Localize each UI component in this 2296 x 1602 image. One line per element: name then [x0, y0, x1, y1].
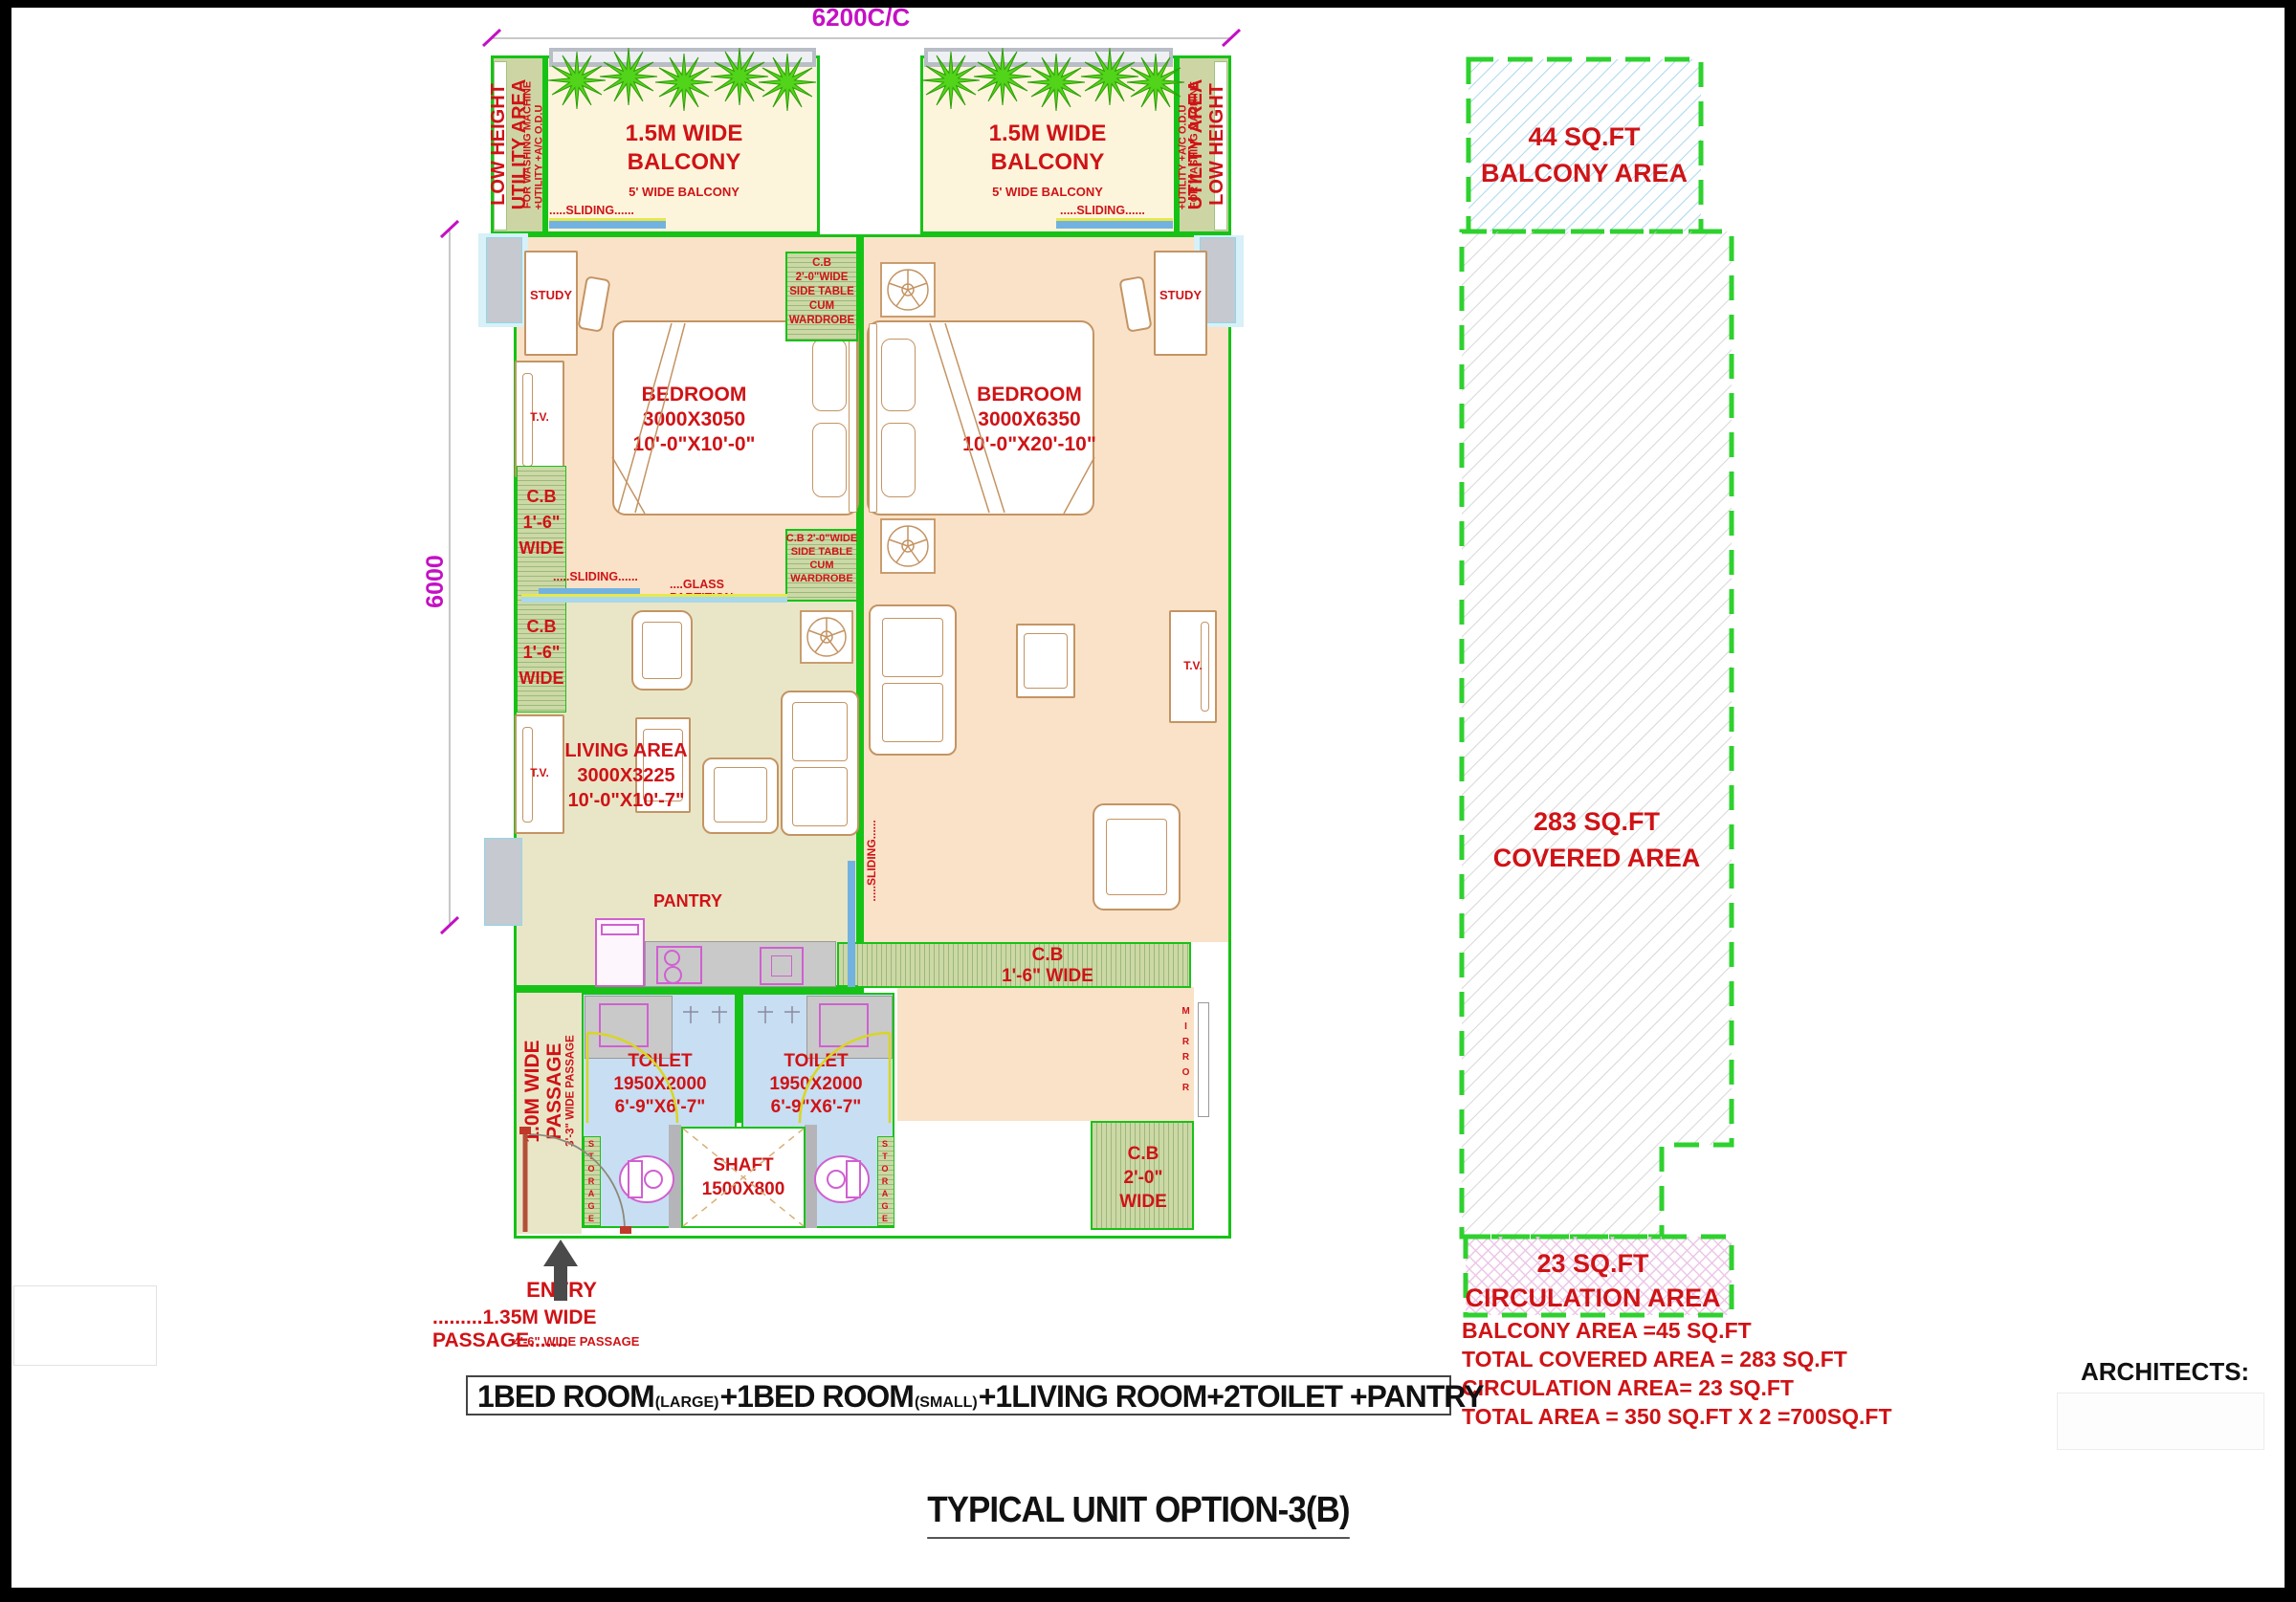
shaft-label: SHAFT1500X800	[686, 1153, 801, 1201]
program-rest: +1LIVING ROOM+2TOILET +PANTRY	[979, 1379, 1484, 1415]
dressing-area-floor	[897, 987, 1194, 1121]
armchair-bedroom2-seat	[1106, 819, 1167, 895]
sofa-living-single-seat	[714, 767, 767, 823]
toilet2-label: TOILET1950X20006'-9"X6'-7"	[744, 1050, 888, 1119]
floor-plan-sheet: 6200C/C 6000 1.5M WIDE BALCONY 5' WIDE B…	[0, 0, 2296, 1602]
sofa-living-cushion-2	[792, 767, 848, 826]
covered-area-box	[1462, 231, 1732, 1237]
study-desk-bedroom2	[1154, 251, 1207, 356]
stove-burner-1	[664, 950, 680, 966]
pantry-label: PANTRY	[653, 891, 749, 911]
sofa-bedroom2-cushion-1	[882, 618, 943, 677]
fridge-top	[601, 924, 639, 935]
area-diagram: 44 SQ.FT BALCONY AREA 283 SQ.FT COVERED …	[1445, 38, 1760, 1329]
sofa-bedroom2-cushion-2	[882, 683, 943, 742]
bed1-pillow-1	[812, 339, 847, 411]
sheet-title: TYPICAL UNIT OPTION-3(B)	[927, 1490, 1349, 1539]
living-area-label: LIVING AREA3000X322510'-0"X10'-7"	[547, 738, 705, 813]
summary-line-covered: TOTAL COVERED AREA = 283 SQ.FT	[1462, 1347, 1921, 1372]
wc-icon-toilet1	[617, 1150, 676, 1209]
toilet1-basin	[599, 1003, 649, 1047]
bedroom1-label: BEDROOM3000X305010'-0"X10'-0"	[620, 383, 768, 457]
balcony-right-label-1: 1.5M WIDE	[961, 121, 1134, 147]
bed1-pillow-2	[812, 423, 847, 497]
storage-label-toilet1: STORAGE	[586, 1139, 596, 1226]
balcony-left-label-1: 1.5M WIDE	[598, 121, 770, 147]
balcony-right-sliding-door	[1056, 221, 1173, 229]
wall-between-toilets	[737, 993, 742, 1123]
balcony-right-sublabel: 5' WIDE BALCONY	[971, 186, 1124, 200]
living-sliding-label: .....SLIDING......	[553, 570, 668, 583]
balcony-left-sublabel: 5' WIDE BALCONY	[607, 186, 761, 200]
summary-line-circulation: CIRCULATION AREA= 23 SQ.FT	[1462, 1375, 1921, 1400]
entry-label: ENTRY	[519, 1278, 605, 1302]
study-desk-bedroom1	[524, 251, 578, 356]
storage-label-toilet2: STORAGE	[880, 1139, 890, 1226]
bed2-headboard	[869, 323, 877, 513]
program-summary-box: 1BED ROOM(LARGE)+1BED ROOM(SMALL)+1LIVIN…	[466, 1375, 1451, 1415]
sink-basin	[771, 955, 792, 977]
fan-icon-living	[800, 610, 853, 664]
passage-46-label: 4'-6" WIDE PASSAGE	[493, 1335, 660, 1350]
program-sup2: (SMALL)	[914, 1394, 979, 1412]
program-plus: +	[719, 1379, 737, 1415]
toilet1-label: TOILET1950X20006'-9"X6'-7"	[588, 1050, 732, 1119]
study-label-bedroom2: STUDY	[1154, 289, 1207, 303]
bed1-headboard	[849, 323, 857, 513]
architects-label: ARCHITECTS:	[2081, 1358, 2263, 1387]
planter-icons-right	[916, 34, 1189, 122]
program-sup1: (LARGE)	[654, 1394, 720, 1412]
covered-area-value: 283 SQ.FT	[1534, 807, 1661, 836]
mirror-panel	[1198, 1002, 1209, 1117]
balcony-left-label-2: BALCONY	[598, 149, 770, 176]
fan-icon-bedroom2-top	[880, 262, 936, 318]
wardrobe-top-label: C.B 2'-0"WIDESIDE TABLECUMWARDROBE	[785, 256, 858, 328]
balcony-left-sliding-label: .....SLIDING......	[549, 204, 664, 217]
cb-bottom-right-label: C.B2'-0"WIDE	[1102, 1142, 1184, 1214]
circulation-area-caption: CIRCULATION AREA	[1466, 1284, 1721, 1312]
bed2-pillow-2	[881, 423, 916, 497]
divider-sliding-door	[848, 861, 855, 987]
summary-line-total: TOTAL AREA = 350 SQ.FT X 2 =700SQ.FT	[1462, 1404, 1921, 1429]
architects-stamp-box	[2057, 1393, 2264, 1450]
covered-area-caption: COVERED AREA	[1493, 844, 1701, 872]
glass-partition	[521, 597, 787, 603]
window-living	[484, 838, 522, 926]
circulation-area-value: 23 SQ.FT	[1536, 1249, 1649, 1278]
armchair-living-seat	[642, 622, 682, 679]
cb-horizontal-label: C.B1'-6" WIDE	[976, 945, 1119, 987]
program-seg1: 1BED ROOM	[477, 1379, 654, 1415]
toilet2-basin	[819, 1003, 869, 1047]
balcony-area-caption: BALCONY AREA	[1481, 159, 1688, 187]
window-bedroom1	[486, 237, 522, 323]
divider-sliding-label: .....SLIDING......	[865, 756, 878, 966]
utility-right-washing-label: FOR WASHING MACHINE	[1189, 70, 1202, 221]
sheet-title-wrap: TYPICAL UNIT OPTION-3(B)	[866, 1490, 1411, 1539]
balcony-left-sliding-door	[549, 221, 666, 229]
side-dimension-label: 6000	[422, 538, 449, 625]
table-bedroom2-top	[1024, 633, 1068, 689]
balcony-right-sliding-label: .....SLIDING......	[1060, 204, 1175, 217]
passage-main-label: 1.0M WIDEPASSAGE	[521, 996, 565, 1187]
planter-icons-left	[541, 34, 828, 122]
cb-left-label-2: C.B1'-6"WIDE	[517, 614, 566, 691]
tv-label-bedroom1: T.V.	[515, 411, 564, 425]
stove-burner-2	[664, 966, 682, 984]
balcony-right-label-2: BALCONY	[961, 149, 1134, 176]
passage-sub-label: 3'-3" WIDE PASSAGE	[565, 1010, 578, 1173]
sofa-living-cushion-1	[792, 702, 848, 761]
bed2-pillow-1	[881, 339, 916, 411]
wc-icon-toilet2	[812, 1150, 872, 1209]
tv-label-bedroom2: T.V.	[1169, 660, 1217, 673]
study-label-bedroom1: STUDY	[524, 289, 578, 303]
fan-icon-bedroom2-bottom	[880, 518, 936, 574]
balcony-area-value: 44 SQ.FT	[1528, 122, 1641, 151]
logo-placeholder-box	[13, 1285, 157, 1366]
summary-line-balcony: BALCONY AREA =45 SQ.FT	[1462, 1318, 1921, 1343]
utility-left-acodu-label: +UTILITY +A/C O.D.U	[534, 82, 546, 233]
bedroom2-label: BEDROOM3000X635010'-0"X20'-10"	[957, 383, 1102, 457]
program-seg2: 1BED ROOM	[737, 1379, 914, 1415]
cb-left-label-1: C.B1'-6"WIDE	[517, 484, 566, 561]
top-dimension-label: 6200C/C	[765, 4, 957, 33]
utility-right-acodu-label: +UTILITY +A/C O.D.U	[1178, 82, 1190, 233]
mirror-label: MIRROR	[1181, 1006, 1191, 1098]
